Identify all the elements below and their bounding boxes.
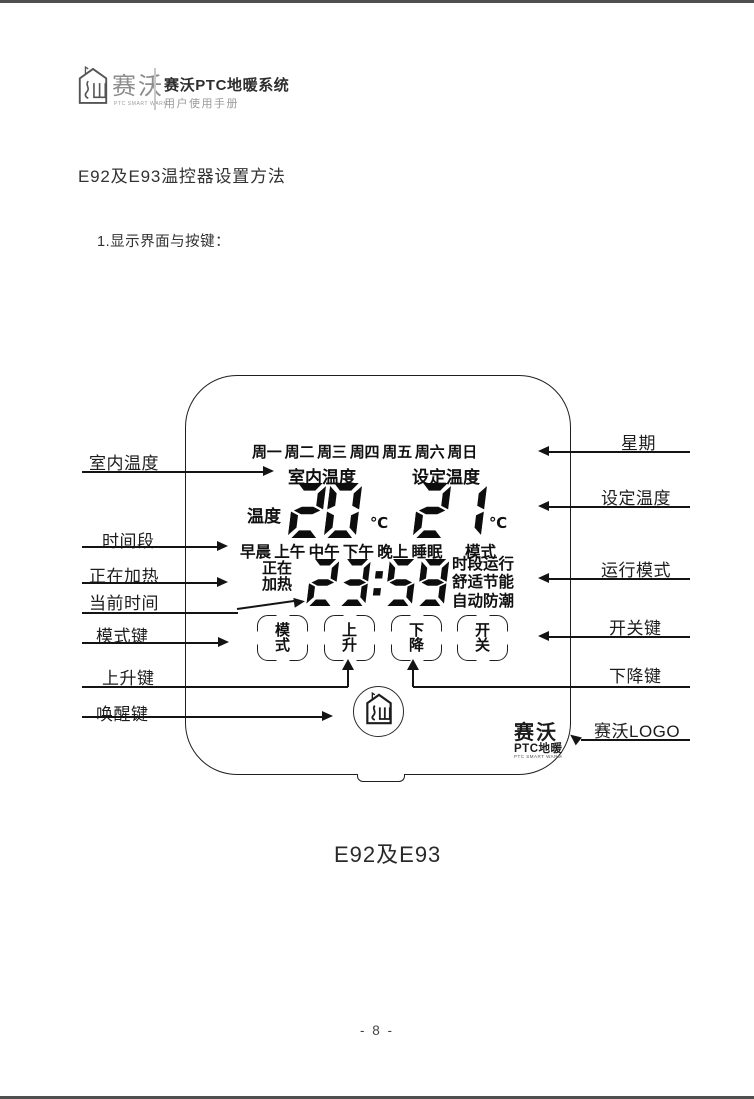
arrow-set-temp (538, 501, 549, 511)
brand-name: 赛沃 (112, 66, 164, 101)
page-top-edge (0, 0, 754, 3)
lcd-mode-item: 自动防潮 (452, 593, 514, 611)
lcd-clock-digits (306, 559, 453, 606)
callout-wake-key: 唤醒键 (96, 700, 149, 725)
document-subtitle: 用户使用手册 (164, 95, 239, 111)
document-title: 赛沃PTC地暖系统 (164, 74, 289, 95)
arrow-run-mode (538, 573, 549, 583)
arrow-indoor-temp (263, 466, 274, 476)
lcd-set-temp-unit: ℃ (489, 514, 507, 532)
arrow-wake-key (322, 711, 333, 721)
lcd-set-temp-digits (413, 483, 492, 538)
leader-line-mode-key (82, 642, 220, 644)
down-button-label-bottom: 降 (409, 638, 424, 654)
leader-line-indoor-temp (82, 471, 265, 473)
arrow-mode-key (218, 637, 229, 647)
brand-house-icon (76, 63, 110, 112)
up-button-label-top: 上 (342, 623, 357, 639)
lcd-mode-item: 舒适节能 (452, 574, 514, 592)
up-button-label-bottom: 升 (342, 638, 357, 654)
leader-line-brand-logo (581, 739, 690, 741)
leader-line-wake-key (82, 716, 325, 718)
arrow-time-period (217, 541, 228, 551)
leader-line-run-mode (549, 578, 690, 580)
leader-line-set-temp (549, 506, 690, 508)
header-divider (154, 68, 156, 110)
thermostat-bottom-notch (357, 774, 405, 782)
figure-caption: E92及E93 (334, 837, 441, 869)
lcd-week-row: 周一 周二 周三 周四 周五 周六 周日 (252, 441, 477, 462)
wake-key-circle (353, 686, 404, 737)
device-brand-tagline: PTC SMART WARM (514, 754, 562, 759)
manual-page: 赛沃 PTC SMART WARM 赛沃PTC地暖系统 用户使用手册 E92及E… (0, 0, 754, 1099)
callout-down-key: 下降键 (609, 662, 662, 687)
power-button: 开关 (457, 615, 508, 661)
arrow-power-key (538, 631, 549, 641)
lcd-indoor-temp-unit: ℃ (370, 514, 388, 532)
mode-button: 模式 (257, 615, 308, 661)
step-title: 1.显示界面与按键： (97, 230, 230, 251)
leader-line-down-key (413, 686, 690, 688)
lcd-heating-line2: 加热 (262, 577, 292, 593)
lcd-heating-indicator: 正在 加热 (262, 561, 292, 592)
lcd-indoor-temp-digits (288, 483, 367, 538)
arrow-heating (217, 577, 228, 587)
arrow-up-key (342, 659, 354, 670)
lcd-mode-list: 时段运行 舒适节能 自动防潮 (452, 556, 514, 611)
brand-tagline: PTC SMART WARM (114, 101, 168, 107)
section-title: E92及E93温控器设置方法 (78, 162, 286, 187)
lcd-mode-item: 时段运行 (452, 556, 514, 574)
callout-time-period: 时间段 (102, 527, 155, 552)
power-button-label-top: 开 (475, 623, 490, 639)
arrow-week (538, 446, 549, 456)
leader-riser-up-key (347, 670, 349, 687)
leader-line-current-time (82, 612, 238, 614)
leader-line-week (549, 451, 690, 453)
up-button: 上升 (324, 615, 375, 661)
callout-current-time: 当前时间 (89, 589, 159, 614)
down-button: 下降 (391, 615, 442, 661)
leader-line-heating (82, 582, 219, 584)
arrow-current-time (293, 596, 305, 607)
wake-key-house-icon (364, 691, 394, 732)
mode-button-label-bottom: 式 (275, 638, 290, 654)
leader-riser-down-key (412, 670, 414, 687)
arrow-down-key (407, 659, 419, 670)
leader-line-power-key (549, 636, 690, 638)
page-number: - 8 - (0, 1023, 754, 1038)
leader-line-up-key (82, 686, 348, 688)
power-button-label-bottom: 关 (475, 638, 490, 654)
lcd-temp-prefix: 温度 (247, 502, 281, 527)
down-button-label-top: 下 (409, 623, 424, 639)
mode-button-label-top: 模 (275, 623, 290, 639)
leader-line-time-period (82, 546, 219, 548)
lcd-heating-line1: 正在 (262, 561, 292, 577)
